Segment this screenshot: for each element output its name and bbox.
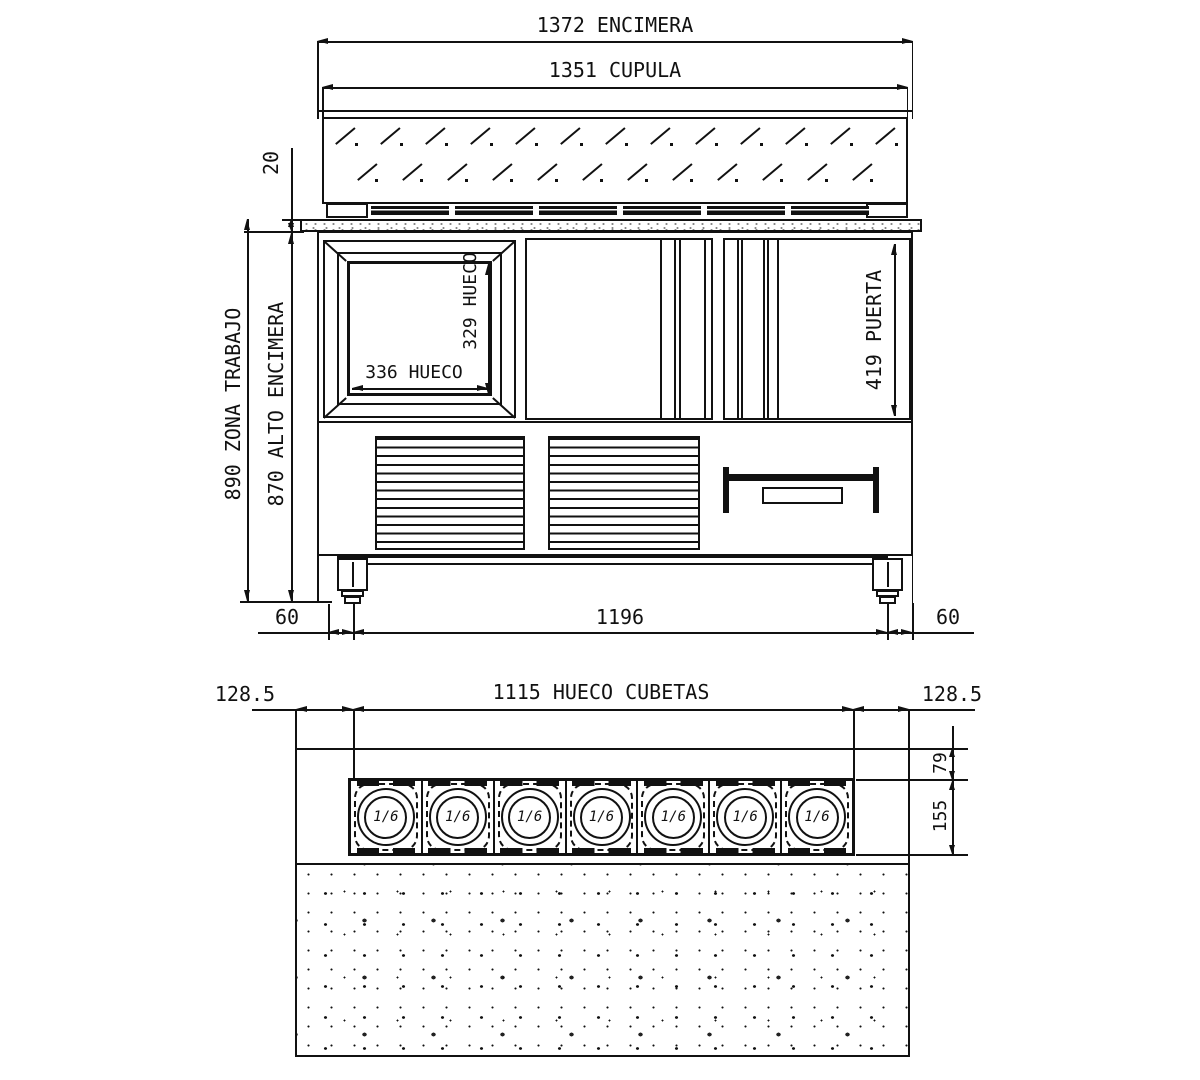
glass-hatch-mark — [740, 127, 761, 145]
dim-label-zona-trabajo: 890 ZONA TRABAJO — [223, 308, 243, 501]
dim-line-encimera — [317, 41, 913, 43]
door-edge-line — [704, 240, 706, 418]
glass-hatch-dot — [805, 143, 808, 146]
pan-rim — [371, 206, 449, 215]
glass-hatch-dot — [735, 179, 738, 182]
pan-rim — [455, 206, 533, 215]
arrowhead — [244, 590, 250, 601]
dim-label-right-margin: 128.5 — [922, 684, 982, 704]
dim-label-hueco-width: 336 HUECO — [365, 364, 463, 382]
gn-pan-label: 1/6 — [517, 809, 542, 825]
glass-hatch-dot — [645, 179, 648, 182]
dim-label-base-width: 1196 — [596, 607, 644, 627]
glass-hatch-dot — [375, 179, 378, 182]
cabinet-side-line — [317, 556, 319, 603]
arrowhead — [891, 244, 897, 255]
dim-label-encimera: 1372 ENCIMERA — [537, 15, 694, 35]
glass-hatch-dot — [510, 179, 513, 182]
glass-hatch-mark — [875, 127, 896, 145]
glass-hatch-dot — [670, 143, 673, 146]
dim-line-890 — [247, 219, 249, 601]
dim-line-hueco-height — [488, 264, 490, 394]
dim-label-left-margin: 128.5 — [215, 684, 275, 704]
vent-louver-middle — [548, 436, 700, 550]
glass-hatch-dot — [825, 179, 828, 182]
cabinet-side-line — [912, 556, 914, 603]
arrowhead — [317, 38, 328, 44]
glass-hatch-dot — [780, 179, 783, 182]
extension-line — [908, 748, 968, 750]
glass-hatch-dot — [555, 179, 558, 182]
dim-label-left-offset: 60 — [275, 607, 299, 627]
arrowhead — [949, 845, 955, 854]
gn-pan-label: 1/6 — [661, 809, 686, 825]
extension-line — [244, 231, 304, 233]
plan-left-edge — [295, 709, 297, 863]
glass-hatch-mark — [425, 127, 446, 145]
arrowhead — [288, 590, 294, 601]
extension-line — [912, 41, 914, 119]
glass-hatch-dot — [600, 179, 603, 182]
glass-hatch-dot — [760, 143, 763, 146]
arrowhead — [353, 706, 364, 712]
arrowhead — [876, 629, 887, 635]
dim-line-base — [258, 632, 974, 634]
gn-pan-cell: 1/6 — [351, 781, 421, 853]
dim-line-hueco-width — [352, 388, 488, 390]
dim-label-puerta: 419 PUERTA — [864, 270, 884, 390]
door-edge-line — [767, 240, 769, 418]
dim-label-row-depth: 155 — [932, 800, 950, 833]
glass-hatch-mark — [560, 127, 581, 145]
extension-line — [907, 87, 909, 119]
door-edge-line — [679, 240, 681, 418]
glass-hatch-mark — [515, 127, 536, 145]
gn-pan-label: 1/6 — [804, 809, 829, 825]
drawing-sheet: 1372 ENCIMERA 1351 CUPULA — [0, 0, 1200, 1080]
gn-pan-cell: 1/6 — [565, 781, 637, 853]
dim-label-hueco-cubetas: 1115 HUECO CUBETAS — [493, 682, 710, 702]
arrowhead — [342, 706, 353, 712]
arrowhead — [342, 629, 353, 635]
arrowhead — [296, 706, 307, 712]
glass-hatch-dot — [870, 179, 873, 182]
glass-hatch-dot — [445, 143, 448, 146]
arrowhead — [485, 383, 491, 394]
left-foot-step2 — [344, 596, 361, 604]
arrowhead — [949, 781, 955, 790]
gn-pan-cell: 1/6 — [493, 781, 565, 853]
glass-hatch-dot — [580, 143, 583, 146]
arrowhead — [901, 629, 912, 635]
pan-rim-end-right — [866, 203, 908, 218]
plan-right-edge — [908, 709, 910, 863]
extension-line — [317, 41, 319, 119]
left-leg-center-line — [352, 562, 354, 587]
pan-rim-end-left — [326, 203, 368, 218]
extension-line — [282, 219, 304, 221]
gn-pan-cell: 1/6 — [421, 781, 493, 853]
dim-label-alto-encimera: 870 ALTO ENCIMERA — [266, 302, 286, 507]
gn-pan-label: 1/6 — [445, 809, 470, 825]
plinth-rail — [337, 556, 888, 565]
right-leg-center-line — [887, 562, 889, 587]
dim-label-back-offset: 79 — [932, 752, 950, 774]
arrowhead — [328, 629, 339, 635]
glass-hatch-mark — [695, 127, 716, 145]
glass-hatch-mark — [650, 127, 671, 145]
gn-pan-label: 1/6 — [733, 809, 758, 825]
dim-label-cupula: 1351 CUPULA — [549, 60, 681, 80]
glass-hatch-dot — [715, 143, 718, 146]
dim-line-cupula — [322, 87, 908, 89]
gn-pan-cell: 1/6 — [636, 781, 708, 853]
glass-hatch-mark — [335, 127, 356, 145]
extension-line — [322, 87, 324, 119]
glass-hatch-dot — [355, 143, 358, 146]
right-foot-step2 — [879, 596, 896, 604]
arrowhead — [322, 84, 333, 90]
glass-hatch-mark — [830, 127, 851, 145]
cupola-rail-line — [317, 110, 913, 112]
drawer-handle-right-bar — [873, 467, 879, 513]
glass-hatch-mark — [380, 127, 401, 145]
drawer-handle-grip — [762, 487, 843, 504]
arrowhead — [891, 405, 897, 416]
door-edge-line — [674, 240, 676, 418]
dim-label-right-offset: 60 — [936, 607, 960, 627]
door-edge-line — [763, 240, 765, 418]
pan-rim — [539, 206, 617, 215]
arrowhead — [853, 706, 864, 712]
dim-label-top-thickness: 20 — [261, 151, 281, 175]
pan-rim — [707, 206, 785, 215]
arrowhead — [485, 264, 491, 275]
glass-hatch-dot — [420, 179, 423, 182]
arrowhead — [288, 223, 294, 231]
arrowhead — [352, 385, 363, 391]
pan-rim — [791, 206, 869, 215]
dim-label-hueco-height: 329 HUECO — [462, 252, 480, 350]
arrowhead — [887, 629, 898, 635]
extension-line — [853, 709, 855, 779]
dim-line-puerta — [894, 244, 896, 416]
extension-line — [353, 709, 355, 779]
glass-hatch-dot — [850, 143, 853, 146]
glass-hatch-mark — [785, 127, 806, 145]
gn-pan-label: 1/6 — [589, 809, 614, 825]
drawer-handle-cross-bar — [729, 474, 873, 481]
door-edge-line — [660, 240, 662, 418]
glass-hatch-dot — [895, 143, 898, 146]
dim-line-79 — [952, 726, 954, 856]
glass-hatch-dot — [690, 179, 693, 182]
dim-line-870 — [291, 231, 293, 601]
glass-hatch-dot — [490, 143, 493, 146]
gn-pan-cell: 1/6 — [780, 781, 852, 853]
vent-louver-left — [375, 436, 525, 550]
glass-hatch-mark — [605, 127, 626, 145]
worktop-surface — [295, 863, 910, 1057]
extension-line — [912, 603, 914, 640]
gn-pan-row: 1/61/61/61/61/61/61/6 — [348, 778, 855, 856]
arrowhead — [353, 629, 364, 635]
door-edge-line — [777, 240, 779, 418]
glass-hatch-dot — [535, 143, 538, 146]
glass-hatch — [327, 121, 903, 200]
gn-pan-label: 1/6 — [373, 809, 398, 825]
extension-line — [240, 601, 332, 603]
arrowhead — [244, 219, 250, 230]
glass-hatch-mark — [470, 127, 491, 145]
glass-hatch-dot — [400, 143, 403, 146]
glass-hatch-dot — [465, 179, 468, 182]
arrowhead — [288, 233, 294, 244]
door-edge-line — [737, 240, 739, 418]
pan-rim — [623, 206, 701, 215]
glass-hatch-dot — [625, 143, 628, 146]
doors-bottom-line — [317, 421, 913, 423]
door-edge-line — [741, 240, 743, 418]
arrowhead — [842, 706, 853, 712]
gn-pan-cell: 1/6 — [708, 781, 780, 853]
middle-door — [525, 238, 713, 420]
plan-back-edge — [295, 748, 910, 750]
